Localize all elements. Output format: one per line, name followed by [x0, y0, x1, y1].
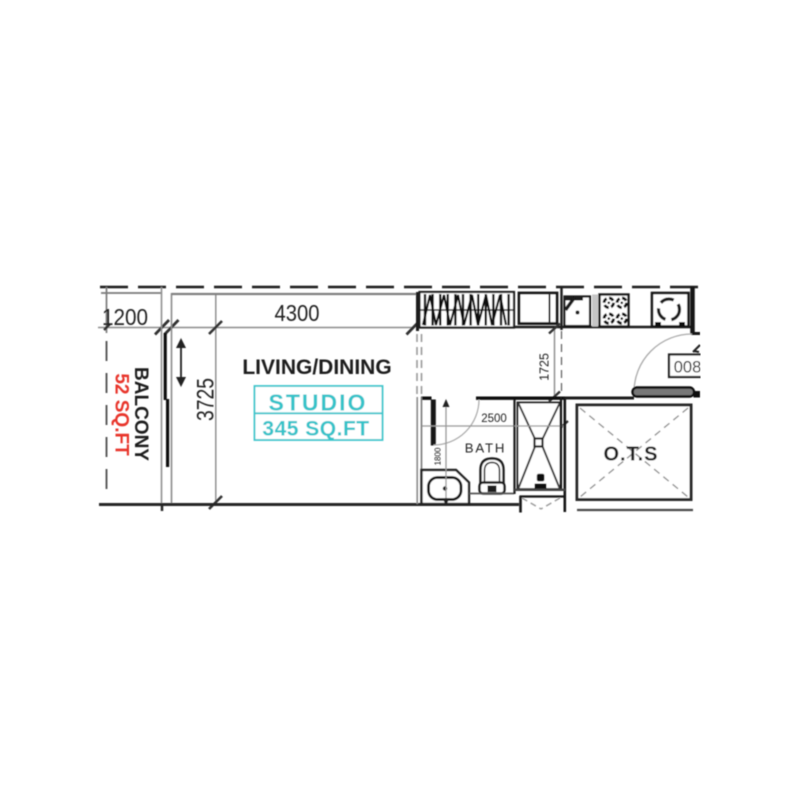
svg-text:O.T.S: O.T.S: [603, 444, 658, 466]
svg-text:1800: 1800: [434, 447, 443, 465]
svg-text:008: 008: [674, 359, 702, 377]
svg-text:4300: 4300: [275, 300, 320, 326]
svg-text:LIVING/DINING: LIVING/DINING: [242, 356, 391, 379]
svg-text:2500: 2500: [481, 413, 507, 425]
svg-text:52 SQ.FT: 52 SQ.FT: [111, 373, 132, 456]
svg-text:1200: 1200: [102, 304, 148, 330]
svg-text:BATH: BATH: [465, 441, 506, 456]
svg-text:345 SQ.FT: 345 SQ.FT: [262, 418, 369, 441]
svg-text:STUDIO: STUDIO: [269, 390, 368, 416]
svg-text:BALCONY: BALCONY: [130, 367, 151, 461]
svg-text:1725: 1725: [538, 353, 552, 381]
svg-text:3725: 3725: [193, 378, 220, 421]
